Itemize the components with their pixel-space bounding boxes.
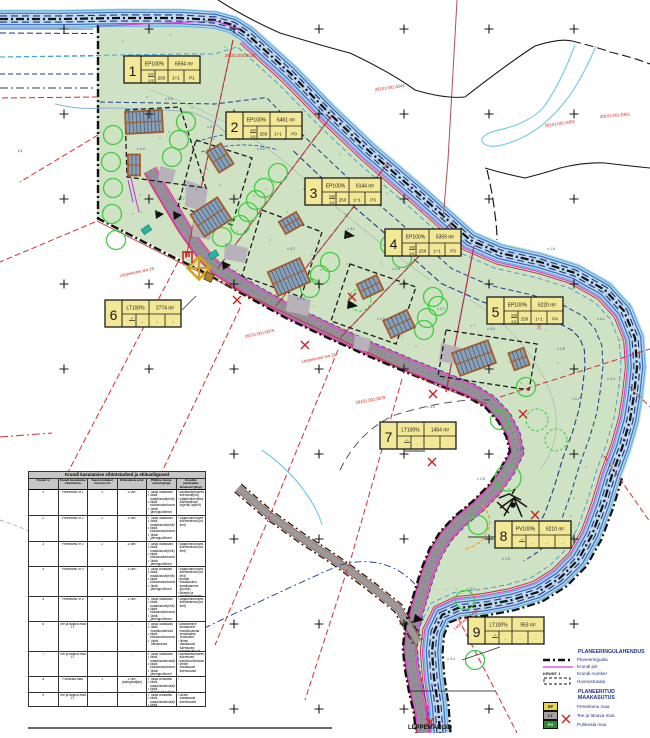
svg-text:4.1: 4.1 xyxy=(600,317,605,321)
svg-text:5: 5 xyxy=(492,304,500,320)
svg-text:1+1: 1+1 xyxy=(433,249,441,254)
svg-text:1.9: 1.9 xyxy=(505,557,510,561)
svg-text:-/-: -/- xyxy=(493,633,497,638)
svg-text:6: 6 xyxy=(110,307,118,323)
svg-text:9: 9 xyxy=(473,624,481,640)
svg-text:2.2: 2.2 xyxy=(470,587,475,591)
svg-text:2.6: 2.6 xyxy=(395,267,400,271)
svg-text:EP100%: EP100% xyxy=(145,62,165,68)
svg-text:3: 3 xyxy=(310,185,318,201)
svg-text:EP100%: EP100% xyxy=(326,184,346,190)
svg-text:6461 m²: 6461 m² xyxy=(277,118,296,124)
svg-text:9/8: 9/8 xyxy=(329,194,335,199)
svg-text:EP100%: EP100% xyxy=(247,118,267,124)
svg-text:1+1: 1+1 xyxy=(274,132,282,137)
svg-text:1+1: 1+1 xyxy=(535,317,543,322)
svg-text:6144 m²: 6144 m² xyxy=(356,184,375,190)
svg-text:9/8: 9/8 xyxy=(511,313,517,318)
svg-text:3.1: 3.1 xyxy=(350,227,355,231)
svg-text:8: 8 xyxy=(500,528,508,544)
svg-text:6220 m²: 6220 m² xyxy=(538,303,557,309)
svg-text:1.7: 1.7 xyxy=(575,397,580,401)
svg-text:-/-: -/- xyxy=(130,316,134,321)
svg-text:2.0: 2.0 xyxy=(210,125,215,129)
svg-text:2: 2 xyxy=(231,119,239,135)
svg-text:3.5: 3.5 xyxy=(260,147,265,151)
svg-text:P4: P4 xyxy=(552,317,558,322)
svg-text:2/1: 2/1 xyxy=(511,319,517,324)
svg-text:1.7: 1.7 xyxy=(440,307,445,311)
svg-text:7: 7 xyxy=(385,429,393,445)
svg-text:1464 m²: 1464 m² xyxy=(431,428,450,434)
svg-text:1+1: 1+1 xyxy=(353,198,361,203)
svg-text:3.4: 3.4 xyxy=(450,657,455,661)
svg-text:P1: P1 xyxy=(189,76,195,81)
svg-text:250: 250 xyxy=(260,132,268,137)
svg-text:953 m²: 953 m² xyxy=(520,623,536,629)
svg-text:2/1: 2/1 xyxy=(329,200,335,205)
svg-text:29101:001:0120: 29101:001:0120 xyxy=(225,53,256,58)
svg-text:LT100%: LT100% xyxy=(126,306,145,312)
svg-text:250: 250 xyxy=(158,76,166,81)
svg-text:2/1: 2/1 xyxy=(409,251,415,256)
svg-text:6210 m²: 6210 m² xyxy=(546,527,565,533)
svg-text:2/1: 2/1 xyxy=(250,134,256,139)
svg-text:9/2: 9/2 xyxy=(148,72,154,77)
svg-text:PV100%: PV100% xyxy=(516,527,536,533)
svg-text:P0: P0 xyxy=(291,132,297,137)
svg-text:1.9: 1.9 xyxy=(380,317,385,321)
svg-text:EP100%: EP100% xyxy=(406,235,426,241)
svg-text:2/1: 2/1 xyxy=(148,78,154,83)
svg-text:2.5: 2.5 xyxy=(168,97,173,101)
svg-text:2.8: 2.8 xyxy=(480,477,485,481)
svg-text:LEPPEMÄRGID: LEPPEMÄRGID xyxy=(408,724,453,731)
svg-text:1: 1 xyxy=(129,63,137,79)
svg-text:2774 m²: 2774 m² xyxy=(156,306,175,312)
svg-text:P3: P3 xyxy=(450,249,456,254)
svg-text:4: 4 xyxy=(390,236,398,252)
svg-text:1.9: 1.9 xyxy=(300,297,305,301)
svg-text:1.8: 1.8 xyxy=(520,447,525,451)
svg-text:LT100%: LT100% xyxy=(489,623,508,629)
svg-text:1+1: 1+1 xyxy=(172,76,180,81)
svg-text:1.6: 1.6 xyxy=(550,247,555,251)
svg-text:3.2: 3.2 xyxy=(290,247,295,251)
svg-text:2.8: 2.8 xyxy=(560,347,565,351)
svg-text:3.0: 3.0 xyxy=(490,327,495,331)
svg-text:6594 m²: 6594 m² xyxy=(175,62,194,68)
svg-text:9/8: 9/8 xyxy=(409,245,415,250)
svg-text:EP100%: EP100% xyxy=(508,303,528,309)
svg-text:LT100%: LT100% xyxy=(401,428,420,434)
svg-text:250: 250 xyxy=(419,249,427,254)
svg-text:250: 250 xyxy=(339,198,347,203)
svg-text:-/-: -/- xyxy=(405,438,409,443)
svg-text:2.7: 2.7 xyxy=(180,197,185,201)
svg-text:5359 m²: 5359 m² xyxy=(436,235,455,241)
svg-text:4.4: 4.4 xyxy=(140,147,145,151)
svg-text:4.0: 4.0 xyxy=(430,405,435,409)
svg-text:2.4: 2.4 xyxy=(610,377,615,381)
svg-text:-/-: -/- xyxy=(520,537,524,542)
svg-text:250: 250 xyxy=(521,317,529,322)
svg-text:9/0: 9/0 xyxy=(250,128,256,133)
svg-text:P3: P3 xyxy=(370,198,376,203)
